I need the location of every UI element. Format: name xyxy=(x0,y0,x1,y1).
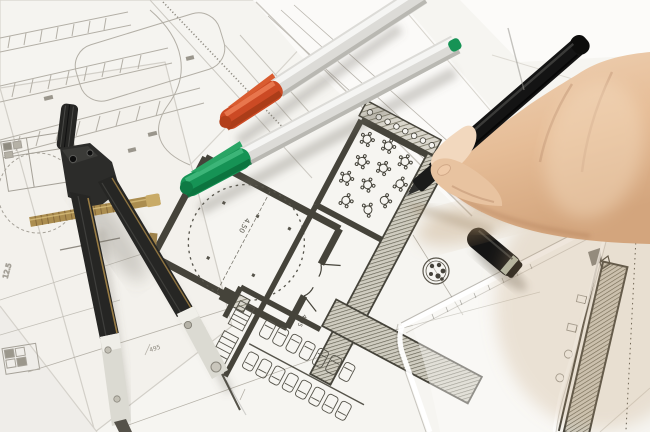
compass-screw xyxy=(69,155,76,162)
photo-architect-desk: 12.5 495 4.50 4.05 xyxy=(0,0,650,432)
photo-canvas: 12.5 495 4.50 4.05 xyxy=(0,0,650,432)
compass-screw xyxy=(87,150,93,156)
